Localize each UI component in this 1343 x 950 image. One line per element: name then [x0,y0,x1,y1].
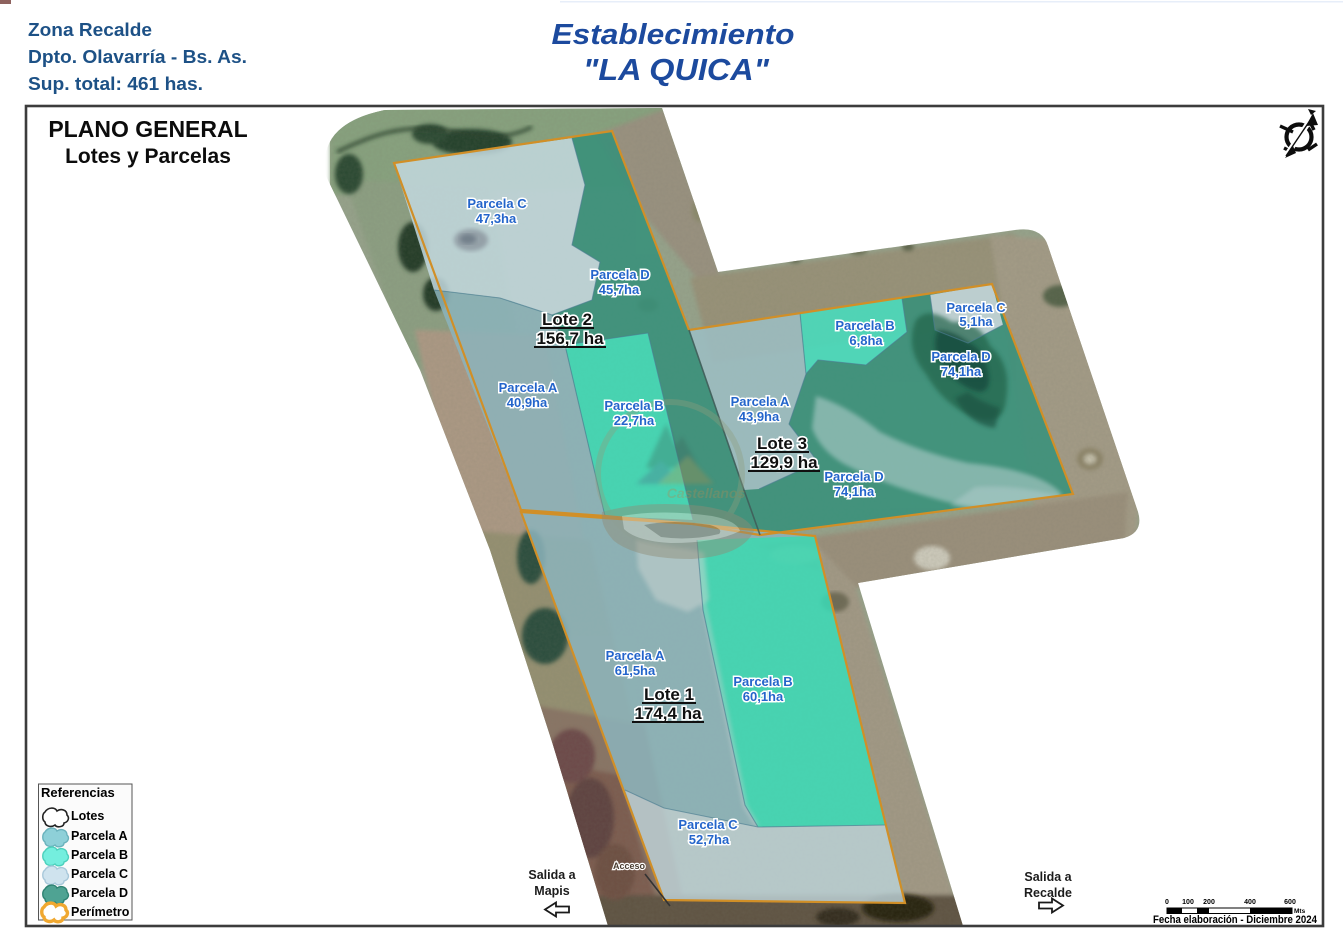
svg-text:Parcela A: Parcela A [606,648,665,663]
svg-text:Castellanos: Castellanos [667,485,746,501]
svg-text:Sup. total: 461 has.: Sup. total: 461 has. [28,74,203,94]
svg-text:100: 100 [1182,899,1194,906]
svg-text:174,4 ha: 174,4 ha [634,704,702,723]
svg-text:400: 400 [1244,899,1256,906]
svg-text:Parcela B: Parcela B [835,318,894,333]
svg-text:Dpto. Olavarría - Bs. As.: Dpto. Olavarría - Bs. As. [28,47,247,67]
svg-text:Perímetro: Perímetro [71,905,130,919]
svg-text:200: 200 [1203,899,1215,906]
svg-text:Parcela A: Parcela A [731,394,790,409]
svg-text:0: 0 [1165,899,1169,906]
svg-text:Parcela D: Parcela D [824,469,883,484]
svg-text:Establecimiento: Establecimiento [552,19,795,51]
svg-text:74,1ha: 74,1ha [834,484,875,499]
svg-text:Parcela D: Parcela D [931,349,990,364]
svg-text:Parcela C: Parcela C [678,817,738,832]
svg-text:Recalde: Recalde [1024,886,1072,900]
svg-text:Referencias: Referencias [41,785,115,800]
svg-text:6,8ha: 6,8ha [849,333,883,348]
svg-text:Lote 3: Lote 3 [757,434,807,453]
svg-text:5,1ha: 5,1ha [959,314,993,329]
svg-text:Parcela B: Parcela B [71,848,128,862]
svg-text:129,9 ha: 129,9 ha [750,453,818,472]
svg-text:Parcela C: Parcela C [467,196,527,211]
svg-text:Salida a: Salida a [528,868,576,882]
svg-text:Zona Recalde: Zona Recalde [28,20,152,40]
svg-text:47,3ha: 47,3ha [476,211,517,226]
svg-text:Lotes: Lotes [71,809,104,823]
svg-text:Parcela A: Parcela A [499,380,558,395]
svg-text:Acceso: Acceso [613,861,646,871]
svg-text:Lote 2: Lote 2 [542,310,592,329]
svg-text:Parcela C: Parcela C [71,867,128,881]
svg-text:74,1ha: 74,1ha [941,364,982,379]
svg-text:PLANO GENERAL: PLANO GENERAL [48,116,247,142]
svg-text:61,5ha: 61,5ha [615,663,656,678]
svg-text:Fecha elaboración - Diciembre: Fecha elaboración - Diciembre 2024 [1153,914,1318,926]
svg-text:600: 600 [1284,899,1296,906]
svg-text:45,7ha: 45,7ha [599,282,640,297]
svg-text:40,9ha: 40,9ha [507,395,548,410]
svg-text:Mapis: Mapis [534,884,569,898]
svg-text:Parcela A: Parcela A [71,829,128,843]
svg-text:156,7 ha: 156,7 ha [536,329,604,348]
svg-text:Parcela C: Parcela C [946,300,1006,315]
svg-text:22,7ha: 22,7ha [614,413,655,428]
svg-text:Parcela D: Parcela D [590,267,649,282]
svg-text:Parcela D: Parcela D [71,886,128,900]
svg-text:52,7ha: 52,7ha [689,832,730,847]
svg-text:Lote 1: Lote 1 [644,685,694,704]
svg-text:Lotes y Parcelas: Lotes y Parcelas [65,145,231,168]
svg-text:"LA QUICA": "LA QUICA" [583,52,770,87]
svg-text:Parcela B: Parcela B [733,674,792,689]
svg-text:Salida a: Salida a [1024,870,1072,884]
svg-text:Parcela B: Parcela B [604,398,663,413]
svg-text:60,1ha: 60,1ha [743,689,784,704]
svg-text:43,9ha: 43,9ha [739,409,780,424]
